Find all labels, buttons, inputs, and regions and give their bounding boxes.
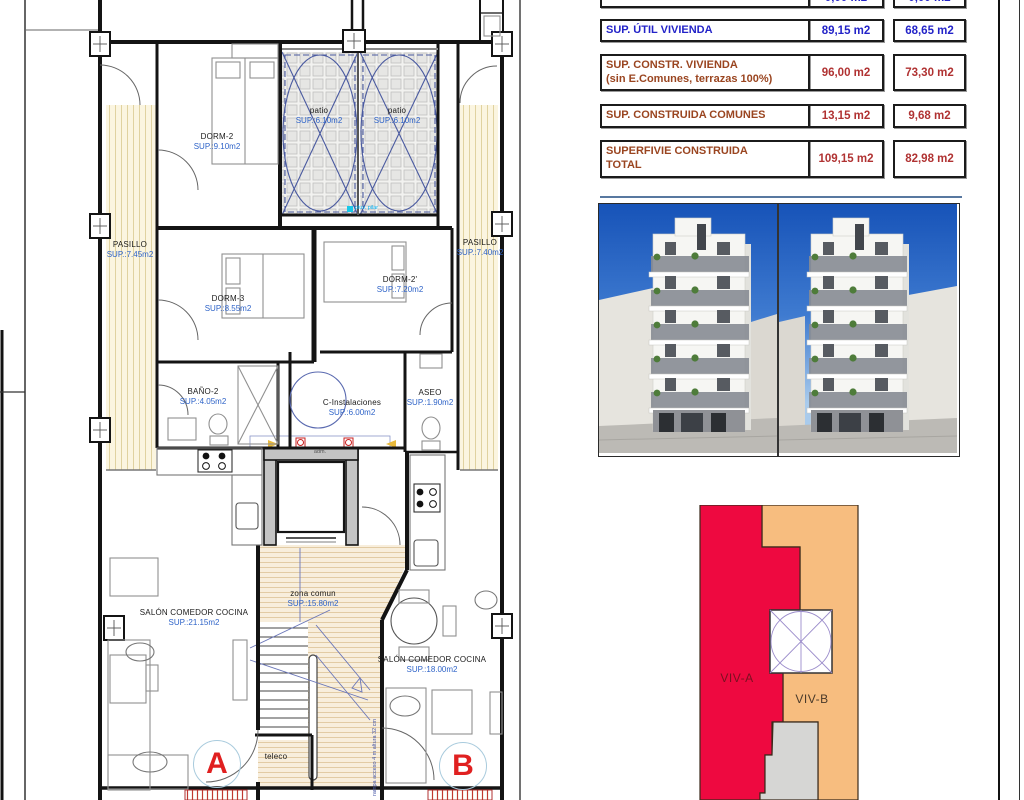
room-label-zona-comun: zona comunSUP.:15.80m2	[252, 589, 374, 609]
room-label-instalaciones: C-InstalacionesSUP.:6.00m2	[300, 398, 404, 418]
building-rendering-right	[779, 204, 957, 453]
unit-a-marker: A	[193, 740, 241, 788]
sheet-border-line-outer	[1019, 0, 1020, 800]
room-label-dorm3: DORM-3SUP.:8.55m2	[178, 294, 278, 314]
room-label-dorm2-prime: DORM-2'SUP.:7.20m2	[348, 275, 452, 295]
unit-b-marker: B	[439, 742, 487, 790]
rainwater-marker	[347, 206, 353, 212]
note-ramp: rampa acceso 4 m altura 32 cm	[372, 636, 378, 796]
table-row: SUP. CONSTRUIDA COMUNES 13,15 m2 9,68 m2	[600, 104, 964, 128]
room-label-pasillo-left: PASILLOSUP.:7.45m2	[94, 240, 166, 260]
sheet-border-line	[998, 0, 1000, 800]
room-label-patio-1: patioSUP.:6.10m2	[280, 106, 358, 126]
note-pluv-pilar: pluv. pilar	[355, 205, 401, 211]
viv-b-label: VIV-B	[781, 692, 843, 706]
building-rendering-left	[599, 204, 777, 453]
note-adm: adm.	[305, 449, 335, 455]
table-row: SUPERFIVIE CONSTRUIDATOTAL 109,15 m2 82,…	[600, 140, 964, 178]
unit-diagram	[695, 505, 865, 800]
building-renderings	[598, 203, 960, 457]
room-label-aseo: ASEOSUP.:1.90m2	[394, 388, 466, 408]
divider-line	[600, 196, 962, 198]
room-label-bano2: BAÑO-2SUP.:4.05m2	[156, 387, 250, 407]
drawing-sheet: DORM-2SUP.:9.10m2 patioSUP.:6.10m2 patio…	[0, 0, 1024, 800]
table-row: SUP. TERRAZA-2 0,00 m2 0,00 m2	[600, 0, 964, 8]
elevator	[264, 448, 358, 545]
room-label-patio-2: patioSUP.:6.10m2	[358, 106, 436, 126]
room-label-dorm2: DORM-2SUP.:9.10m2	[167, 132, 267, 152]
area-table: SUP. TERRAZA-2 0,00 m2 0,00 m2 SUP. ÚTIL…	[600, 0, 964, 178]
room-label-teleco: teleco	[250, 752, 302, 762]
viv-a-label: VIV-A	[706, 671, 768, 685]
room-label-salon-a: SALÓN COMEDOR COCINASUP.:21.15m2	[116, 608, 272, 628]
table-row: SUP. CONSTR. VIVIENDA(sin E.Comunes, ter…	[600, 54, 964, 91]
room-label-pasillo-right: PASILLOSUP.:7.40m2	[444, 238, 516, 258]
table-row: SUP. ÚTIL VIVIENDA 89,15 m2 68,65 m2	[600, 19, 964, 42]
